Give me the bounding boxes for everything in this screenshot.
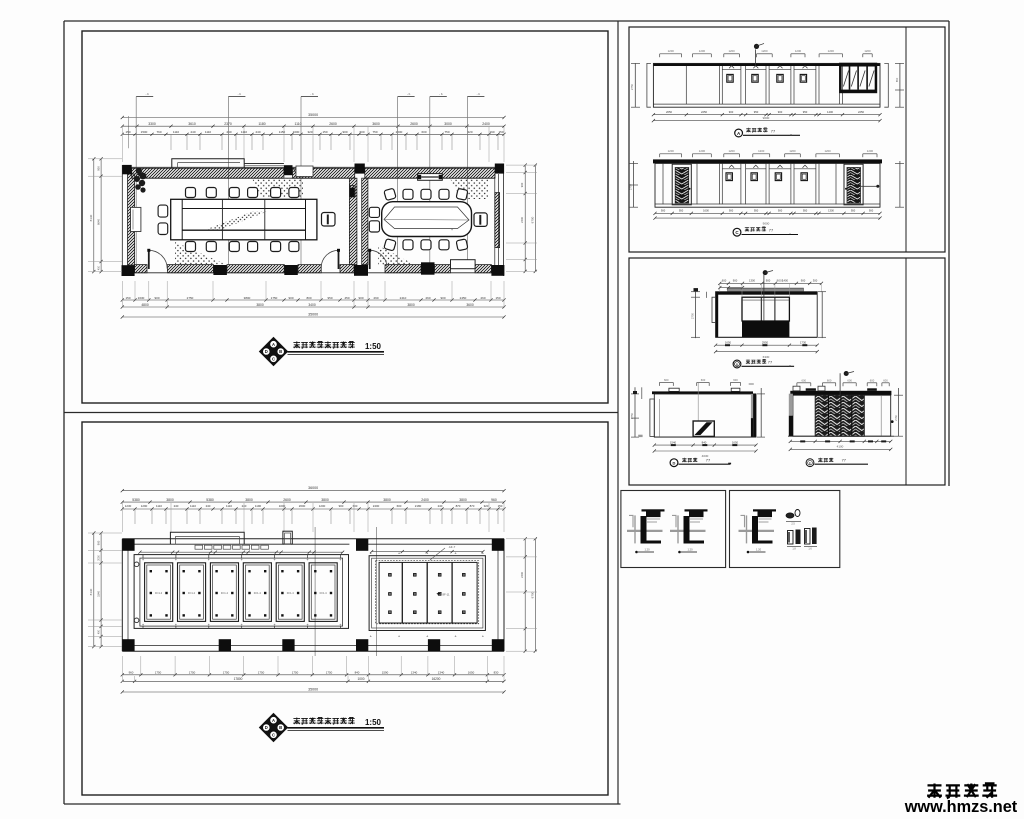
svg-text:3610: 3610 (188, 122, 196, 126)
svg-text:800: 800 (306, 296, 311, 300)
svg-text:320: 320 (467, 130, 472, 134)
svg-text:950: 950 (803, 209, 808, 213)
svg-text:950: 950 (679, 209, 684, 213)
svg-text:260: 260 (480, 296, 485, 300)
svg-text:16200: 16200 (432, 677, 441, 681)
svg-text:1290: 1290 (141, 504, 148, 508)
svg-text:1750: 1750 (223, 671, 230, 675)
svg-text:240: 240 (226, 130, 231, 134)
svg-text:900: 900 (342, 130, 347, 134)
svg-text:2410: 2410 (400, 296, 407, 300)
svg-text:4100: 4100 (837, 445, 844, 449)
svg-text:2600: 2600 (329, 122, 337, 126)
svg-text:1110: 1110 (156, 504, 162, 508)
svg-text:8700: 8700 (530, 216, 534, 223)
svg-text:900: 900 (766, 278, 771, 282)
svg-text:77: 77 (706, 458, 711, 463)
svg-text:8130: 8130 (89, 588, 93, 595)
svg-text:1.20: 1.20 (756, 548, 762, 552)
svg-text:900: 900 (869, 209, 874, 213)
svg-text:2400: 2400 (482, 122, 490, 126)
svg-text:- b: - b (145, 92, 149, 96)
svg-text:600: 600 (421, 130, 426, 134)
svg-text:950: 950 (754, 209, 759, 213)
svg-text:450: 450 (344, 296, 349, 300)
svg-text:760: 760 (156, 130, 161, 134)
svg-text:2950: 2950 (762, 340, 769, 344)
svg-text:17800: 17800 (234, 677, 243, 681)
svg-text:3800: 3800 (383, 498, 391, 502)
svg-text:2250: 2250 (701, 110, 707, 114)
svg-text:1200: 1200 (789, 149, 796, 153)
svg-text:1750: 1750 (271, 296, 278, 300)
svg-text:1000: 1000 (293, 130, 300, 134)
svg-text:1200: 1200 (828, 49, 835, 53)
svg-text:410: 410 (97, 265, 100, 270)
svg-text:3800: 3800 (256, 303, 264, 307)
svg-text:1200: 1200 (668, 49, 675, 53)
svg-text:900: 900 (729, 110, 734, 114)
svg-text:. =: . = (787, 232, 791, 236)
svg-text:1200: 1200 (668, 149, 675, 153)
svg-text:8F-11: 8F-11 (442, 593, 450, 597)
svg-text:1110: 1110 (190, 504, 196, 508)
svg-text:1200: 1200 (699, 49, 706, 53)
svg-text:960: 960 (491, 498, 497, 502)
svg-text:2250: 2250 (858, 110, 864, 114)
svg-text:35000: 35000 (308, 312, 318, 316)
svg-text:1200: 1200 (319, 504, 326, 508)
svg-text:www.hmzs.net: www.hmzs.net (904, 798, 1018, 816)
svg-text:950: 950 (851, 209, 856, 213)
svg-text:2050: 2050 (666, 110, 672, 114)
svg-text:1500: 1500 (141, 130, 148, 134)
svg-text:900: 900 (96, 540, 100, 545)
svg-text:900: 900 (729, 209, 734, 213)
svg-text:2050: 2050 (97, 555, 100, 561)
svg-text:950: 950 (754, 110, 759, 114)
svg-text:4800: 4800 (141, 303, 149, 307)
svg-text:600: 600 (701, 378, 706, 382)
svg-text:1200: 1200 (867, 149, 874, 153)
svg-text:A: A (272, 718, 275, 723)
svg-text:900: 900 (733, 278, 738, 282)
svg-text:2750: 2750 (894, 415, 898, 421)
svg-text:1:50: 1:50 (365, 342, 382, 351)
svg-text:1590: 1590 (382, 671, 389, 675)
svg-text:9000: 9000 (763, 116, 770, 120)
svg-text:2500: 2500 (396, 130, 403, 134)
svg-text:1340: 1340 (438, 671, 445, 675)
svg-text:D: D (265, 725, 268, 730)
svg-text:750: 750 (372, 130, 377, 134)
svg-text:900: 900 (778, 110, 783, 114)
svg-text:600: 600 (827, 378, 832, 382)
svg-text:150: 150 (125, 296, 130, 300)
svg-text:900: 900 (520, 182, 524, 187)
svg-text:1110: 1110 (226, 504, 232, 508)
svg-text:C: C (272, 733, 275, 738)
svg-text:1110: 1110 (173, 130, 180, 134)
svg-text:600: 600 (870, 378, 875, 382)
svg-text:35000: 35000 (308, 687, 318, 691)
svg-text:1630: 1630 (138, 296, 145, 300)
svg-text:1110: 1110 (294, 122, 301, 126)
svg-text:1750: 1750 (155, 671, 162, 675)
svg-text:1200: 1200 (758, 149, 765, 153)
svg-text:1750: 1750 (189, 671, 196, 675)
svg-text:3800: 3800 (407, 303, 415, 307)
svg-text:600: 600 (733, 378, 738, 382)
svg-text:+: + (451, 228, 453, 232)
svg-text:870: 870 (456, 504, 461, 508)
svg-text:840: 840 (355, 671, 360, 675)
svg-text:950: 950 (327, 296, 332, 300)
svg-text:5380: 5380 (132, 498, 140, 502)
svg-text:900: 900 (96, 166, 100, 171)
svg-text:77: 77 (768, 359, 773, 364)
svg-text:D: D (673, 461, 676, 466)
svg-text:2600: 2600 (299, 504, 306, 508)
svg-text:2750: 2750 (630, 83, 634, 90)
svg-text:1600: 1600 (703, 209, 709, 213)
svg-text:900: 900 (661, 209, 666, 213)
svg-text:3800: 3800 (321, 498, 329, 502)
svg-text:190: 190 (489, 130, 494, 134)
svg-text:1180: 1180 (258, 122, 265, 126)
svg-text:2750: 2750 (630, 412, 634, 419)
svg-text:1650: 1650 (732, 440, 739, 444)
svg-text:3800: 3800 (459, 498, 467, 502)
svg-text:150: 150 (125, 130, 130, 134)
svg-text:A: A (272, 342, 275, 347)
svg-text:2400: 2400 (520, 217, 524, 223)
svg-text:900: 900 (154, 296, 159, 300)
svg-text:600: 600 (722, 278, 727, 282)
svg-text:2400: 2400 (520, 572, 524, 578)
svg-text:1190: 1190 (255, 504, 262, 508)
svg-text:1340: 1340 (411, 671, 418, 675)
svg-text:- b: - b (439, 92, 443, 96)
svg-text:C: C (272, 357, 275, 362)
svg-text:900: 900 (801, 278, 806, 282)
svg-text:900: 900 (288, 296, 293, 300)
svg-text:240: 240 (438, 504, 443, 508)
svg-text:8700: 8700 (530, 591, 534, 598)
svg-text:1750: 1750 (326, 671, 333, 675)
svg-text:3600: 3600 (466, 303, 474, 307)
svg-text:2750: 2750 (691, 312, 695, 319)
svg-text:870: 870 (470, 504, 475, 508)
svg-text:1650: 1650 (725, 340, 732, 344)
svg-text:6640: 6640 (96, 219, 100, 225)
svg-text:150: 150 (495, 296, 500, 300)
svg-text:830: 830 (494, 671, 499, 675)
svg-text:. =: . = (788, 133, 792, 137)
svg-text:300: 300 (813, 278, 818, 282)
svg-text:35000: 35000 (308, 113, 318, 117)
svg-text:1150: 1150 (279, 130, 286, 134)
svg-text:2180: 2180 (415, 504, 422, 508)
svg-text:750: 750 (444, 130, 449, 134)
svg-text:240: 240 (206, 504, 211, 508)
svg-text:77: 77 (842, 458, 847, 463)
svg-text:900: 900 (778, 209, 783, 213)
svg-text:600: 600 (397, 504, 402, 508)
svg-text:600: 600 (802, 378, 807, 382)
svg-text:600: 600 (359, 130, 364, 134)
svg-text:8001: 8001 (777, 279, 784, 283)
svg-text:600: 600 (353, 504, 358, 508)
svg-text:D=1.4: D=1.4 (155, 591, 163, 595)
svg-text:150: 150 (498, 504, 503, 508)
svg-text:960: 960 (129, 671, 134, 675)
svg-text:840: 840 (702, 440, 707, 444)
svg-text:1200: 1200 (699, 149, 706, 153)
svg-text:950: 950 (803, 110, 808, 114)
svg-text:1730: 1730 (800, 340, 807, 344)
svg-text:77: 77 (771, 129, 776, 134)
svg-text:2750: 2750 (629, 183, 633, 190)
svg-text:900: 900 (440, 296, 445, 300)
svg-text:1750: 1750 (258, 671, 265, 675)
svg-text:D=1.4: D=1.4 (188, 591, 196, 595)
svg-text:3300: 3300 (148, 122, 156, 126)
svg-text:9000: 9000 (763, 221, 770, 225)
svg-text:1.20: 1.20 (687, 548, 693, 552)
svg-text:6330: 6330 (763, 355, 770, 359)
svg-text:D=1.4: D=1.4 (221, 591, 229, 595)
svg-text:2400: 2400 (373, 504, 380, 508)
svg-text:77: 77 (769, 228, 774, 233)
svg-text:AF-7: AF-7 (449, 545, 456, 549)
svg-text:150: 150 (498, 130, 503, 134)
svg-text:1:50: 1:50 (365, 718, 382, 727)
svg-text:1300: 1300 (828, 209, 834, 213)
svg-text:- b: - b (477, 92, 481, 96)
svg-text:2750: 2750 (187, 296, 194, 300)
svg-text:1400: 1400 (827, 110, 833, 114)
svg-text:3400: 3400 (308, 303, 316, 307)
svg-text:36000: 36000 (308, 486, 318, 490)
svg-text:240: 240 (190, 130, 195, 134)
svg-text:1300: 1300 (749, 278, 755, 282)
svg-text:1540: 1540 (670, 440, 677, 444)
svg-text:D=1.4: D=1.4 (287, 591, 295, 595)
svg-text:3600: 3600 (372, 122, 380, 126)
svg-text:1.20: 1.20 (644, 548, 650, 552)
svg-text:600: 600 (847, 378, 852, 382)
svg-text:1000: 1000 (357, 677, 364, 681)
svg-text:2400: 2400 (421, 498, 429, 502)
svg-text:1230: 1230 (125, 504, 132, 508)
svg-text:600: 600 (664, 378, 669, 382)
svg-text:1650: 1650 (468, 671, 475, 675)
svg-text:1000: 1000 (279, 504, 286, 508)
svg-text:2600: 2600 (283, 498, 291, 502)
svg-text:. =: . = (787, 364, 791, 368)
svg-text:900: 900 (339, 504, 344, 508)
svg-text:3800: 3800 (244, 296, 251, 300)
svg-text:260: 260 (425, 296, 430, 300)
svg-text:1750: 1750 (292, 671, 299, 675)
svg-text:3340: 3340 (96, 591, 100, 597)
svg-text:D=1.4: D=1.4 (254, 591, 262, 595)
svg-text:150: 150 (322, 130, 327, 134)
svg-text:450: 450 (97, 629, 100, 634)
svg-text:290: 290 (373, 296, 378, 300)
svg-text:1200: 1200 (761, 49, 768, 53)
svg-text:600: 600 (883, 378, 888, 382)
svg-text:8130: 8130 (89, 214, 93, 221)
svg-text:1200: 1200 (728, 49, 735, 53)
svg-text:3800: 3800 (245, 498, 253, 502)
svg-text:2600: 2600 (410, 122, 418, 126)
svg-text:1200: 1200 (795, 49, 802, 53)
svg-text:1200: 1200 (864, 49, 871, 53)
svg-text:900: 900 (358, 296, 363, 300)
svg-text:- b: - b (238, 92, 242, 96)
svg-text:2450: 2450 (460, 296, 467, 300)
svg-text:- b: - b (407, 92, 411, 96)
svg-text:240: 240 (255, 130, 260, 134)
svg-text:240: 240 (174, 504, 179, 508)
svg-text:850: 850 (895, 77, 899, 82)
svg-text:320: 320 (307, 130, 312, 134)
svg-text:B: B (279, 349, 282, 354)
svg-text:3800: 3800 (166, 498, 174, 502)
svg-text:5380: 5380 (206, 498, 214, 502)
svg-text:D=1.4: D=1.4 (320, 591, 328, 595)
svg-text:B: B (279, 725, 282, 730)
svg-text:1200: 1200 (728, 149, 735, 153)
svg-text:- b: - b (310, 92, 314, 96)
svg-text:3000: 3000 (444, 122, 452, 126)
svg-text:1110: 1110 (205, 130, 212, 134)
svg-text:1200: 1200 (824, 149, 831, 153)
svg-text:D: D (265, 349, 268, 354)
svg-text:320: 320 (484, 504, 489, 508)
